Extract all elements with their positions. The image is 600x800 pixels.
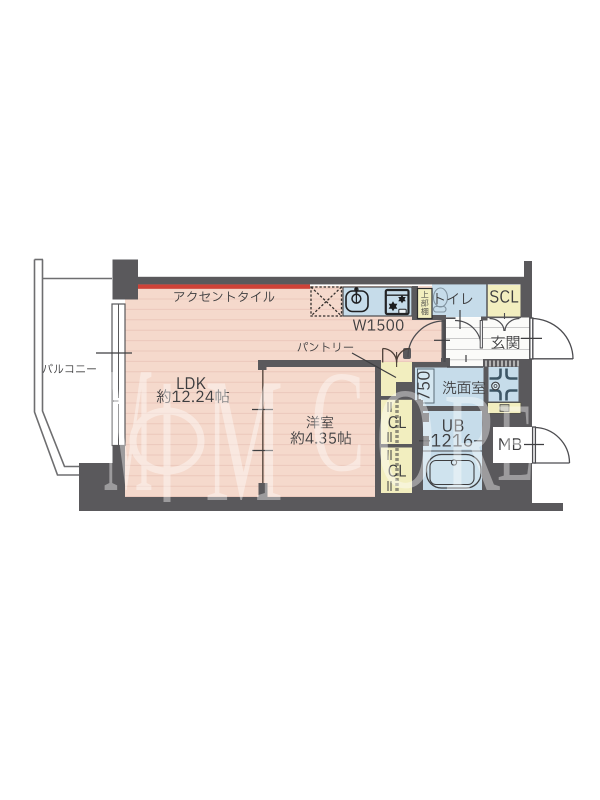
svg-text:O: O [376,359,435,519]
svg-text:E: E [497,381,534,505]
svg-text:M: M [205,341,283,539]
svg-text:C: C [311,342,365,502]
svg-text:R: R [444,363,500,521]
svg-text:M: M [103,330,153,529]
